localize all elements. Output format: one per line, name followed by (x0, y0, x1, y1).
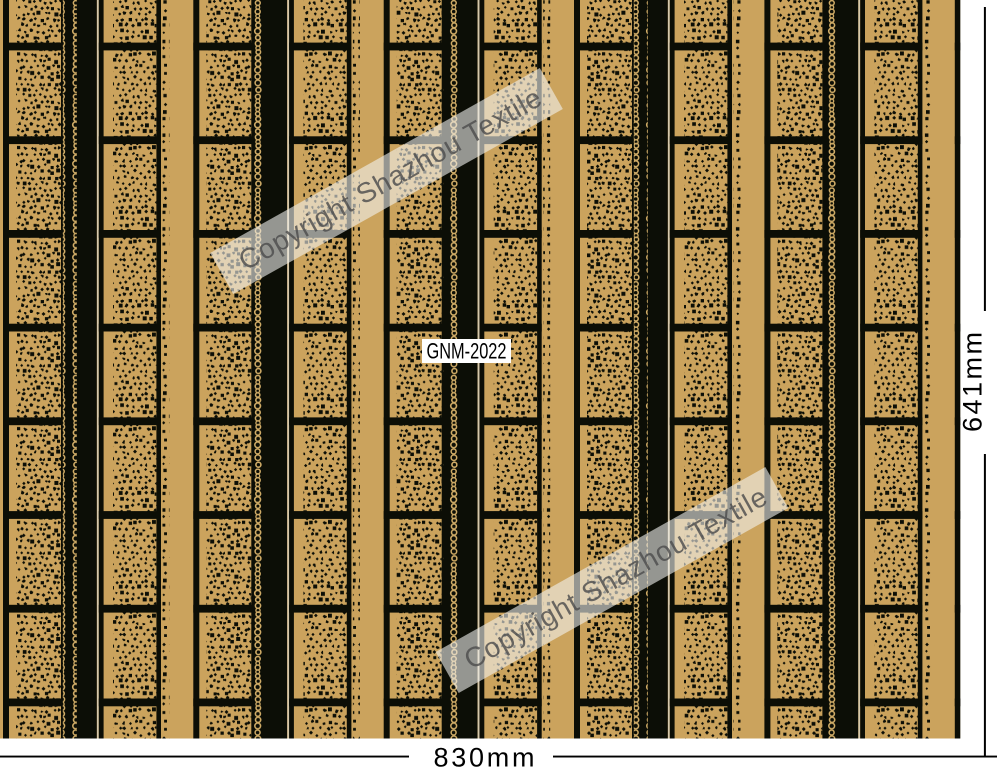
svg-text:GNM-2022: GNM-2022 (427, 339, 507, 364)
svg-text:641mm: 641mm (958, 332, 988, 432)
